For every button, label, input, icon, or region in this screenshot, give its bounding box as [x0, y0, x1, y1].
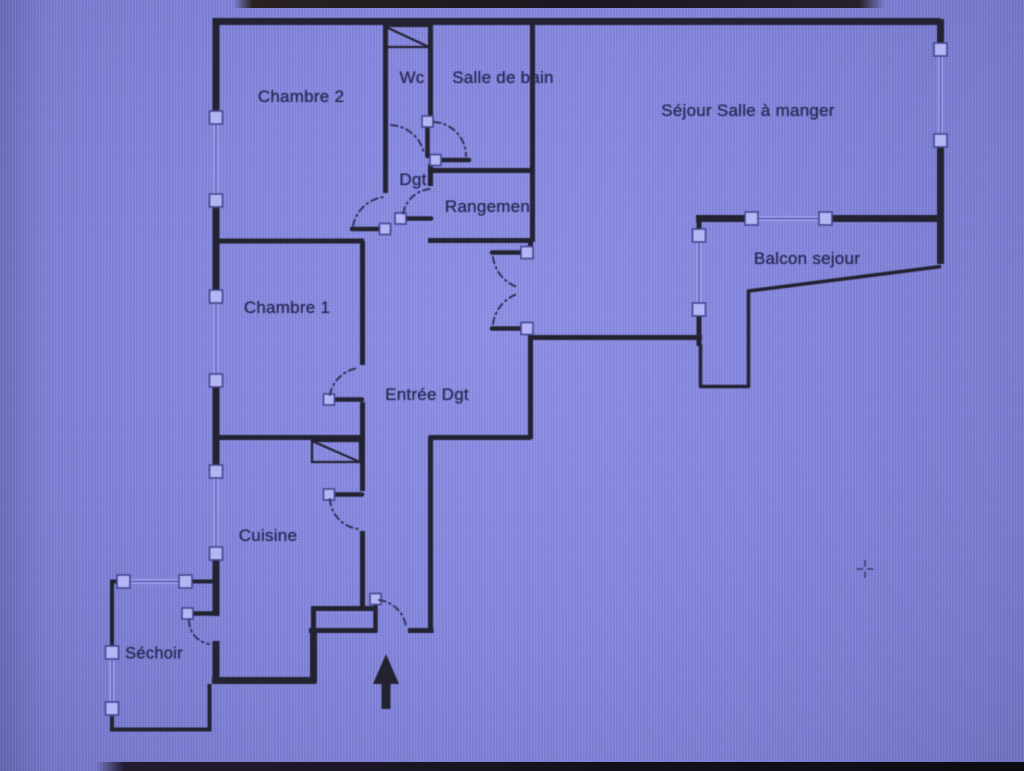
window-chambre1-icon: [210, 290, 223, 387]
window-balcon-top-icon: [745, 212, 832, 225]
door-chambre1-icon: [324, 368, 363, 405]
photo-edge-bottom: [96, 762, 1024, 771]
window-sechoir-left-icon: [106, 646, 119, 715]
door-entry-icon: [370, 594, 406, 632]
room-label-wc: Wc: [399, 68, 424, 88]
door-chambre2-icon: [352, 197, 391, 235]
room-label-entree: Entrée Dgt: [385, 385, 469, 405]
door-wc-icon: [391, 116, 433, 156]
window-sechoir-top-icon: [117, 575, 192, 588]
room-label-rangement: Rangement: [445, 197, 535, 217]
window-chambre2-icon: [210, 111, 223, 207]
room-label-balcon: Balcon sejour: [754, 249, 860, 269]
crosshair-cursor[interactable]: [857, 560, 874, 578]
room-label-chambre1: Chambre 1: [244, 298, 330, 318]
doors: [182, 116, 533, 644]
door-sejour-double-icon: [492, 247, 533, 335]
room-label-cuisine: Cuisine: [239, 526, 297, 546]
windows: [106, 43, 948, 715]
room-label-chambre2: Chambre 2: [258, 87, 344, 107]
cuisine-shaft-icon: [312, 441, 360, 462]
window-cuisine-icon: [210, 465, 223, 560]
room-label-dgt: Dgt: [399, 170, 426, 190]
wc-shaft-icon: [386, 26, 430, 47]
balcony-outline: [701, 267, 942, 387]
door-rangement-icon: [395, 189, 431, 224]
door-cuisine-icon: [324, 489, 363, 529]
room-label-sejour: Séjour Salle à manger: [661, 101, 834, 121]
photo-edge-top: [233, 0, 885, 8]
door-sechoir-icon: [182, 608, 216, 644]
floor-plan: Chambre 2 Wc Salle de bain Séjour Salle …: [0, 0, 1024, 771]
door-salle-de-bain-icon: [430, 122, 469, 166]
window-sejour-right-icon: [934, 43, 947, 147]
room-label-salle-de-bain: Salle de bain: [452, 68, 554, 88]
floor-plan-photo: Chambre 2 Wc Salle de bain Séjour Salle …: [0, 0, 1024, 771]
window-balcon-left-icon: [693, 229, 706, 316]
room-label-sechoir: Séchoir: [125, 645, 183, 664]
entrance-arrow-icon: [373, 654, 399, 709]
